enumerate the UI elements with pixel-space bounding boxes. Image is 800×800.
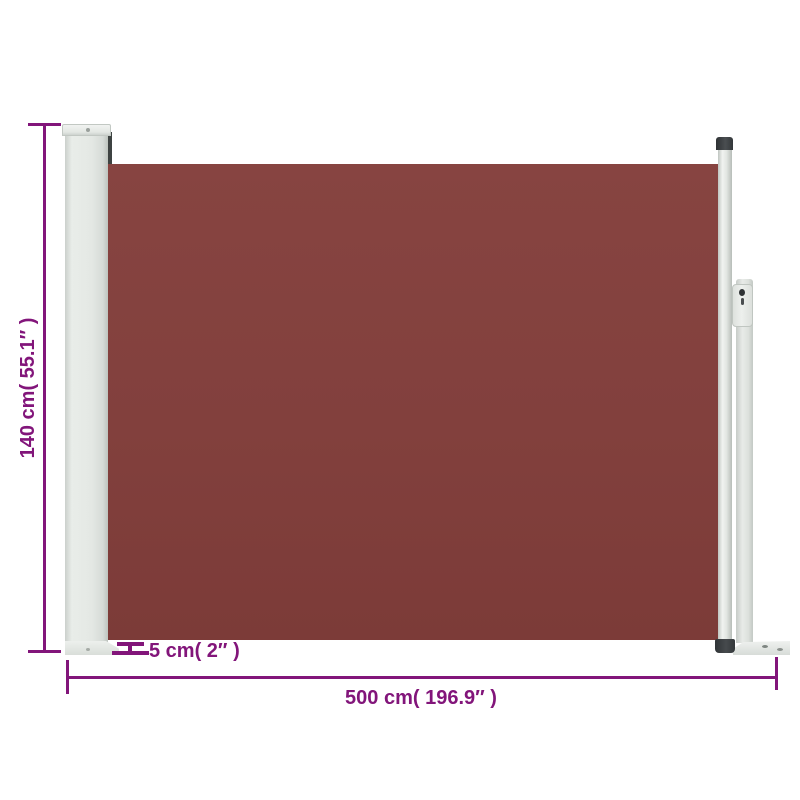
awning-fabric-panel xyxy=(107,164,719,640)
awning-dimension-diagram: 140 cm( 55.1″ ) 5 cm( 2″ ) 500 cm( 196.9… xyxy=(0,0,800,800)
depth-dimension-label: 5 cm( 2″ ) xyxy=(149,641,240,661)
width-dimension-line xyxy=(66,676,778,679)
left-cassette-post xyxy=(65,126,108,644)
right-guide-track xyxy=(736,279,753,643)
left-cassette-base-plate xyxy=(65,641,119,655)
height-dimension-line xyxy=(43,124,46,653)
cassette-cap-screw-icon xyxy=(86,128,90,132)
right-pole-top-cap xyxy=(716,137,733,150)
right-support-pole xyxy=(718,150,732,640)
width-dimension-tick-left xyxy=(66,660,69,694)
right-pole-foot xyxy=(715,639,735,653)
depth-dimension-tick-bottom xyxy=(112,651,149,655)
height-dimension-label: 140 cm( 55.1″ ) xyxy=(18,318,38,459)
width-dimension-tick-right xyxy=(775,657,778,690)
height-dimension-tick-top xyxy=(28,123,61,126)
base-plate-screw-hole-icon xyxy=(762,645,768,648)
height-dimension-tick-bottom xyxy=(28,650,61,653)
width-dimension-label: 500 cm( 196.9″ ) xyxy=(345,688,497,708)
cassette-base-screw-icon xyxy=(86,648,90,651)
bracket-keyhole-slot-icon xyxy=(741,298,744,305)
base-plate-screw-hole-icon xyxy=(777,648,783,651)
bracket-keyhole-icon xyxy=(739,289,745,296)
